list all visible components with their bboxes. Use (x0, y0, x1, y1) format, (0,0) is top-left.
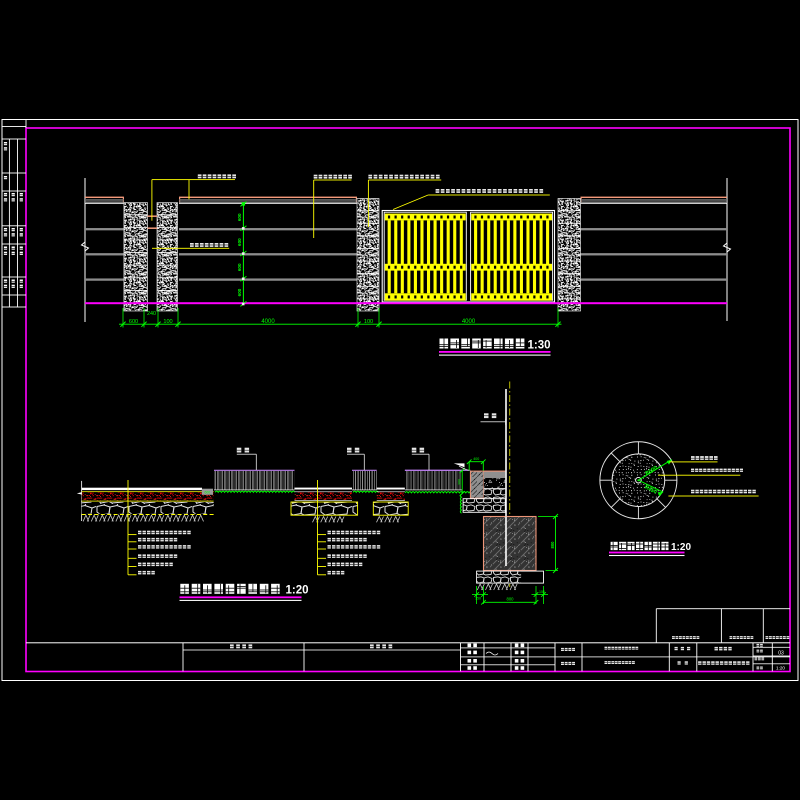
svg-text:03: 03 (778, 651, 784, 657)
svg-text:1:20: 1:20 (671, 542, 691, 553)
svg-text:4000: 4000 (462, 319, 476, 325)
svg-text:1:20: 1:20 (776, 665, 785, 670)
svg-text:1:30: 1:30 (528, 339, 551, 351)
svg-text:100: 100 (163, 319, 172, 325)
svg-text:600: 600 (129, 319, 138, 325)
svg-text:1:20: 1:20 (286, 585, 309, 597)
svg-text:150: 150 (539, 590, 545, 594)
svg-text:400: 400 (473, 457, 479, 461)
svg-text:600: 600 (237, 263, 242, 271)
svg-text:600: 600 (237, 238, 242, 246)
svg-text:600: 600 (237, 288, 242, 296)
svg-text:600: 600 (204, 491, 210, 495)
svg-text:4000: 4000 (261, 319, 275, 325)
svg-text:300: 300 (457, 479, 461, 485)
svg-text:800: 800 (550, 541, 555, 549)
svg-text:150: 150 (475, 596, 481, 600)
svg-text:600: 600 (237, 213, 242, 221)
svg-text:800: 800 (507, 597, 515, 602)
svg-text:240: 240 (147, 311, 156, 317)
svg-text:100: 100 (364, 319, 373, 325)
